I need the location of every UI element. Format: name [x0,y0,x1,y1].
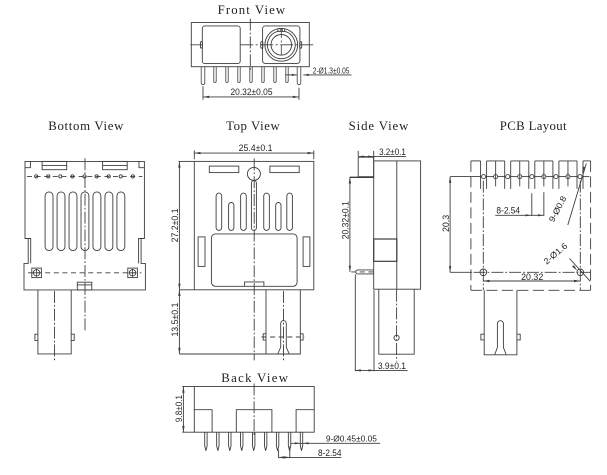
svg-text:2-Ø1.3±0.05: 2-Ø1.3±0.05 [313,66,350,75]
svg-text:20.3: 20.3 [441,215,451,232]
svg-text:27.2±0.1: 27.2±0.1 [170,208,180,242]
svg-text:Side View: Side View [349,119,409,133]
svg-text:20.32±0.05: 20.32±0.05 [231,87,273,97]
svg-text:25.4±0.1: 25.4±0.1 [239,143,273,153]
svg-text:9.8±0.1: 9.8±0.1 [174,395,184,422]
svg-text:3.2±0.1: 3.2±0.1 [379,147,406,157]
svg-text:20.32±0.1: 20.32±0.1 [341,201,351,239]
svg-text:8-2.54: 8-2.54 [318,448,342,458]
svg-text:13.5±0.1: 13.5±0.1 [170,303,180,337]
svg-text:8-2.54: 8-2.54 [496,206,520,216]
svg-text:PCB Layout: PCB Layout [500,119,567,133]
svg-text:3.9±0.1: 3.9±0.1 [378,361,406,371]
svg-text:Front View: Front View [218,3,286,17]
svg-text:20.32: 20.32 [521,272,543,282]
svg-text:Back View: Back View [221,371,288,385]
svg-text:9-Ø0.45±0.05: 9-Ø0.45±0.05 [326,434,377,444]
svg-text:Top View: Top View [226,119,280,133]
svg-text:Bottom View: Bottom View [48,119,124,133]
